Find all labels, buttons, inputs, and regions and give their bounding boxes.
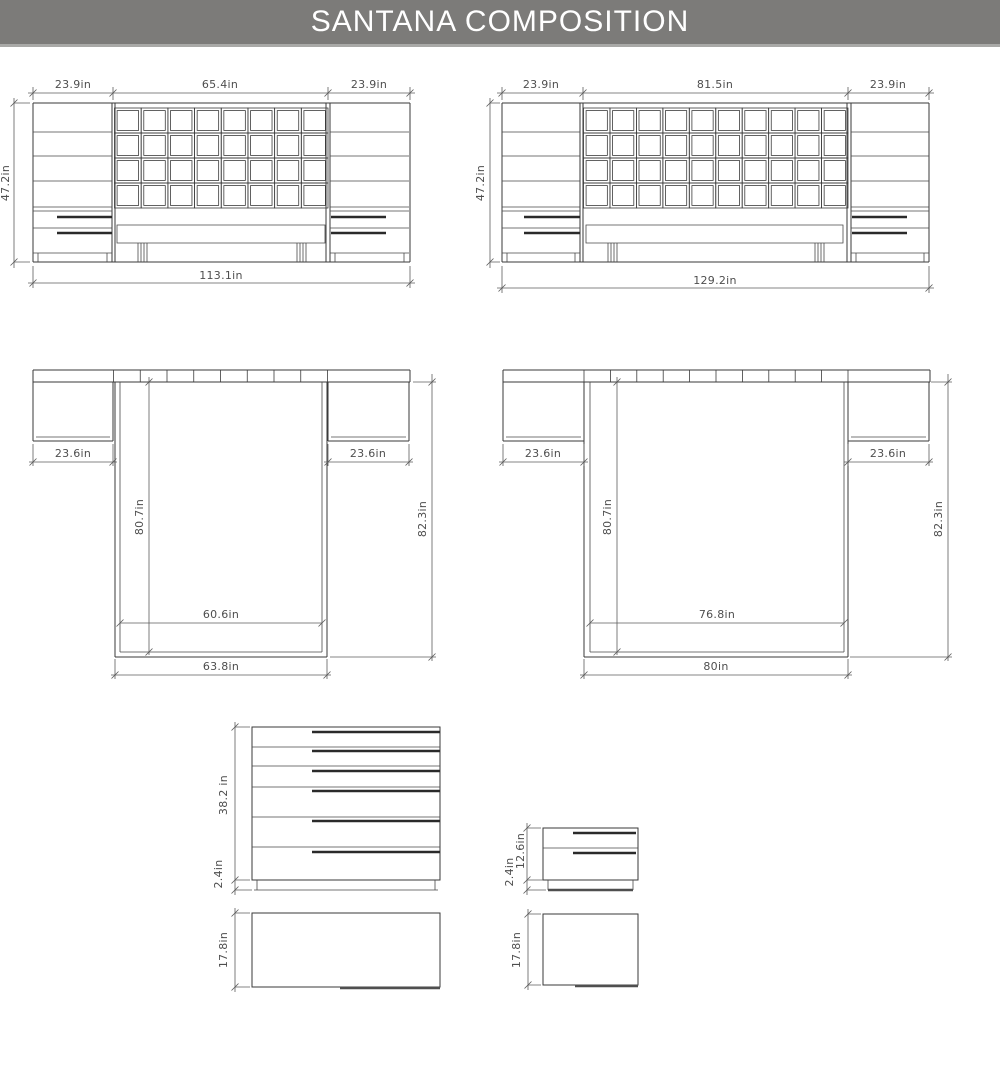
dim-total-width: 113.1in bbox=[199, 269, 243, 282]
bed-legs bbox=[138, 243, 306, 262]
headboard-slat-ticks bbox=[584, 370, 848, 382]
dresser-plinth bbox=[254, 880, 438, 890]
dim-mattress-width: 60.6in bbox=[203, 608, 239, 621]
nightstand-left bbox=[502, 211, 580, 262]
dim-height: 47.2in bbox=[0, 165, 12, 201]
bed-legs bbox=[608, 243, 824, 262]
spec-sheet-page: SANTANA COMPOSITION bbox=[0, 0, 1000, 1071]
headboard-slat-ticks bbox=[114, 370, 328, 382]
dim-dresser-base: 2.4in bbox=[212, 859, 225, 888]
headboard-grid bbox=[584, 108, 849, 208]
dim-frame-width: 63.8in bbox=[203, 660, 239, 673]
dresser-top-view: 17.8in bbox=[217, 908, 440, 992]
composition-drawing: 23.9in 65.4in 23.9in 47.2in 113.1in bbox=[0, 0, 1000, 1071]
drawer-handles bbox=[312, 732, 440, 852]
nightstand-left-plan bbox=[33, 382, 113, 441]
dresser-top-outline bbox=[252, 913, 440, 987]
dim-nightstand-left-width: 23.9in bbox=[523, 78, 559, 91]
nightstand-front-view: 12.6in 2.4in bbox=[503, 823, 638, 895]
dimensions: 17.8in bbox=[217, 908, 250, 992]
dim-nightstand-depth-right: 23.6in bbox=[350, 447, 386, 460]
bed-top-view-king: 23.6in 23.6in 80.7in 82.3in 76.8in 80in bbox=[499, 370, 952, 679]
dim-total-depth: 82.3in bbox=[416, 501, 429, 537]
dim-bed-length: 80.7in bbox=[133, 499, 146, 535]
dim-nightstand-base: 2.4in bbox=[503, 857, 516, 886]
drawer-dividers bbox=[252, 747, 440, 847]
dim-total-width: 129.2in bbox=[693, 274, 737, 287]
dim-total-depth: 82.3in bbox=[932, 501, 945, 537]
dim-nightstand-right-width: 23.9in bbox=[870, 78, 906, 91]
bed-platform bbox=[117, 225, 325, 243]
headboard-grid bbox=[115, 108, 329, 208]
nightstand-left bbox=[33, 211, 112, 262]
dim-dresser-depth: 17.8in bbox=[217, 932, 230, 968]
bed-front-view-king: 23.9in 81.5in 23.9in 47.2in 129.2in bbox=[474, 78, 934, 293]
dimensions: 23.6in 23.6in 80.7in 82.3in 60.6in 63.8i… bbox=[29, 374, 436, 679]
nightstand-top-outline bbox=[543, 914, 638, 985]
nightstand-top-view: 17.8in bbox=[510, 909, 638, 990]
bed-front-view-queen: 23.9in 65.4in 23.9in 47.2in 113.1in bbox=[0, 78, 415, 288]
dim-nightstand-right-width: 23.9in bbox=[351, 78, 387, 91]
dim-nightstand-depth: 17.8in bbox=[510, 932, 523, 968]
dim-nightstand-depth-right: 23.6in bbox=[870, 447, 906, 460]
headboard-strip bbox=[503, 370, 930, 382]
dim-bed-length: 80.7in bbox=[601, 499, 614, 535]
dim-dresser-height: 38.2 in bbox=[217, 775, 230, 815]
dresser-front-view: 38.2 in 2.4in bbox=[212, 722, 440, 895]
dim-nightstand-left-width: 23.9in bbox=[55, 78, 91, 91]
dimensions: 12.6in 2.4in bbox=[503, 823, 546, 895]
dimensions: 17.8in bbox=[510, 909, 541, 990]
nightstand-left-plan bbox=[503, 382, 584, 441]
dim-mattress-width: 76.8in bbox=[699, 608, 735, 621]
nightstand-right-plan bbox=[848, 382, 929, 441]
dim-nightstand-depth-left: 23.6in bbox=[525, 447, 561, 460]
dim-headboard-width: 81.5in bbox=[697, 78, 733, 91]
nightstand-right-plan bbox=[328, 382, 409, 441]
nightstand-plinth bbox=[548, 880, 633, 890]
nightstand-right bbox=[330, 211, 409, 262]
dim-headboard-width: 65.4in bbox=[202, 78, 238, 91]
dim-nightstand-depth-left: 23.6in bbox=[55, 447, 91, 460]
bed-top-view-queen: 23.6in 23.6in 80.7in 82.3in 60.6in 63.8i… bbox=[29, 370, 436, 679]
dim-frame-width: 80in bbox=[703, 660, 728, 673]
headboard-strip bbox=[33, 370, 410, 382]
drawer-handles bbox=[573, 833, 636, 853]
dimensions: 23.6in 23.6in 80.7in 82.3in 76.8in 80in bbox=[499, 374, 952, 679]
dim-height: 47.2in bbox=[474, 165, 487, 201]
bed-platform bbox=[586, 225, 843, 243]
dimensions: 38.2 in 2.4in bbox=[212, 722, 252, 895]
nightstand-right bbox=[851, 211, 929, 262]
